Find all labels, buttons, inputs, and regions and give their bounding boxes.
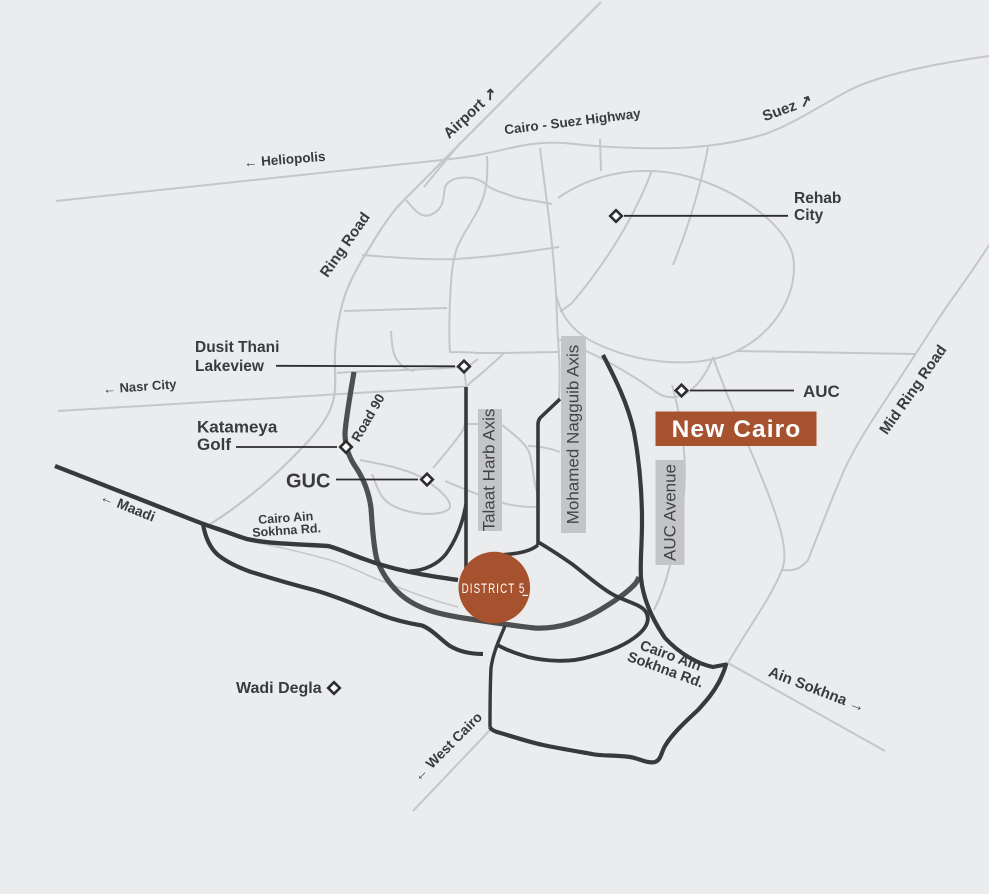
svg-text:AUC Avenue: AUC Avenue	[661, 464, 680, 561]
svg-text:City: City	[794, 207, 824, 224]
svg-text:Wadi Degla: Wadi Degla	[236, 680, 322, 697]
svg-text:Talaat Harb Axis: Talaat Harb Axis	[480, 409, 499, 532]
svg-text:DISTRICT 5: DISTRICT 5	[462, 580, 526, 596]
svg-text:GUC: GUC	[286, 471, 330, 493]
svg-text:Dusit Thani: Dusit Thani	[195, 339, 279, 356]
svg-text:Lakeview: Lakeview	[195, 358, 265, 375]
svg-text:AUC: AUC	[803, 382, 840, 401]
svg-text:Katameya: Katameya	[197, 418, 278, 437]
svg-text:Golf: Golf	[197, 435, 231, 454]
svg-text:Mohamed Nagguib Axis: Mohamed Nagguib Axis	[564, 345, 583, 525]
svg-text:New Cairo: New Cairo	[672, 416, 802, 443]
svg-text:Rehab: Rehab	[794, 190, 841, 207]
